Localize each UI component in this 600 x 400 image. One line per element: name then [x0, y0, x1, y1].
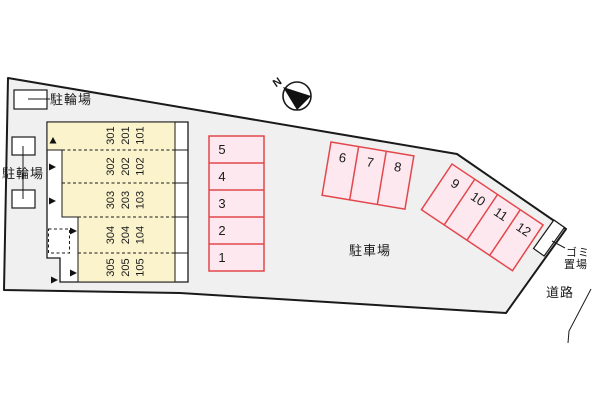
unit-number: 105 — [135, 258, 147, 276]
parking-area-label: 駐車場 — [349, 243, 391, 258]
unit-number: 103 — [135, 191, 147, 209]
building: 301 201 101 302 202 102 303 203 103 304 … — [47, 122, 188, 284]
unit-number: 303 — [105, 191, 117, 209]
bicycle-parking-top: 駐輪場 — [14, 90, 92, 109]
parking-space-number: 2 — [218, 223, 225, 238]
compass: N — [271, 76, 311, 110]
road-label: 道路 — [546, 285, 574, 300]
parking-space-number: 3 — [218, 196, 225, 211]
unit-number: 104 — [135, 226, 147, 244]
bicycle-parking-left-label: 駐輪場 — [2, 166, 44, 181]
parking-space-number: 5 — [218, 142, 225, 157]
unit-number: 102 — [135, 157, 147, 175]
unit-number: 302 — [105, 157, 117, 175]
bicycle-parking-top-label: 駐輪場 — [50, 92, 92, 107]
parking-space-number: 1 — [218, 250, 225, 265]
unit-number: 205 — [120, 258, 132, 276]
site-plan: 道路 N 駐輪場 駐輪場 — [0, 0, 600, 400]
parking-column-outline — [209, 136, 264, 271]
unit-number: 304 — [105, 226, 117, 244]
unit-number: 301 — [105, 126, 117, 144]
parking-space-number: 4 — [218, 169, 225, 184]
parking-column-1-5: 5 4 3 2 1 — [209, 136, 264, 271]
site-plan-canvas: 道路 N 駐輪場 駐輪場 — [0, 0, 600, 400]
unit-number: 101 — [135, 126, 147, 144]
unit-number: 203 — [120, 191, 132, 209]
compass-north-label: N — [271, 76, 284, 90]
unit-number: 305 — [105, 258, 117, 276]
garbage-label-line2: 置場 — [564, 258, 588, 271]
unit-number: 201 — [120, 126, 132, 144]
unit-number: 204 — [120, 226, 132, 244]
unit-number: 202 — [120, 157, 132, 175]
garbage-label-line1: ゴミ — [566, 245, 590, 259]
